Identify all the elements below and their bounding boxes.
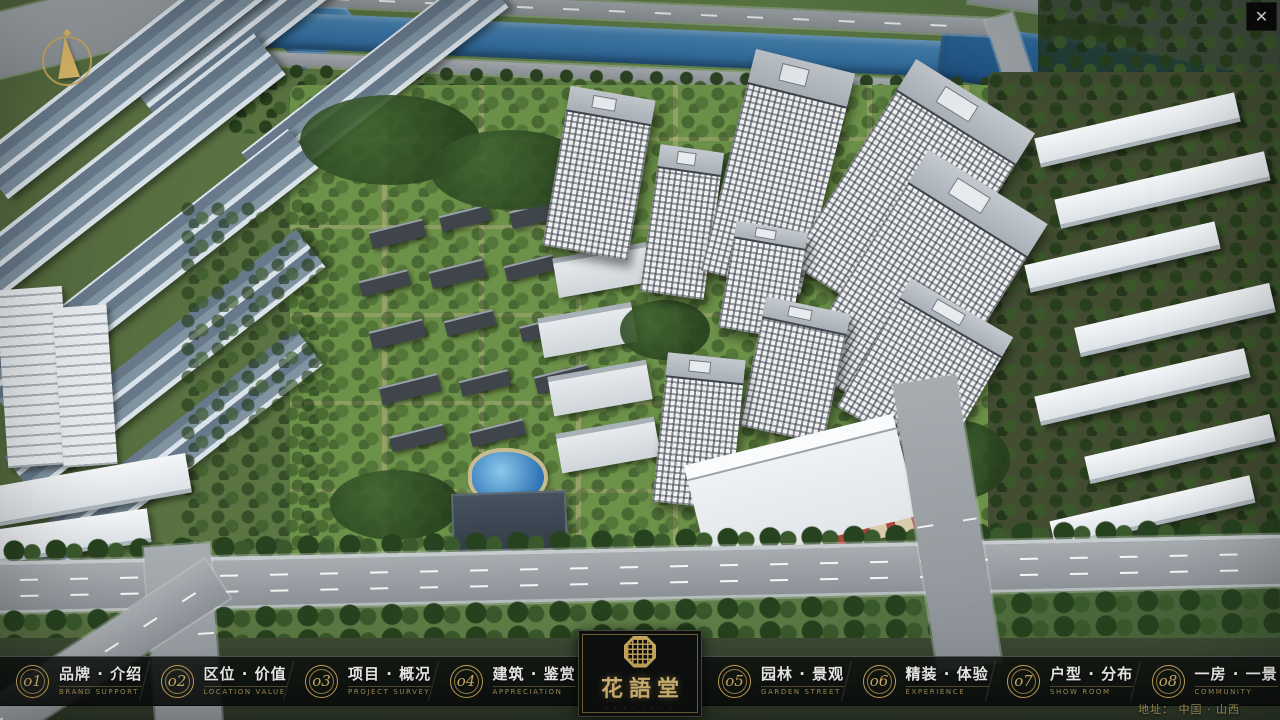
menu-item-label: 建筑 · 鉴赏 bbox=[493, 666, 576, 683]
menu-item-floorplan[interactable]: o7 户型 · 分布 SHOW ROOM bbox=[991, 657, 1136, 705]
tree-cluster bbox=[620, 300, 710, 360]
menu-group-left: o1 品牌 · 介绍 BRAND SUPPORT o2 区位 · 价值 LOCA… bbox=[0, 656, 578, 706]
menu-item-label: 一房 · 一景 bbox=[1195, 666, 1278, 683]
compass-needle bbox=[54, 35, 80, 79]
menu-item-label: 区位 · 价值 bbox=[204, 666, 287, 683]
brand-seal-icon bbox=[624, 636, 656, 668]
menu-number-icon: o2 bbox=[161, 665, 194, 698]
brand-seal-pattern bbox=[627, 639, 653, 665]
menu-number: o7 bbox=[1014, 672, 1033, 690]
close-icon: ✕ bbox=[1255, 7, 1268, 26]
menu-number: o2 bbox=[168, 672, 187, 690]
menu-item-subtitle: APPRECIATION bbox=[493, 686, 576, 696]
menu-number-icon: o3 bbox=[305, 665, 338, 698]
villa-roof bbox=[379, 373, 442, 405]
menu-item-subtitle: BRAND SUPPORT bbox=[59, 686, 142, 696]
tree-belt bbox=[180, 200, 330, 550]
villa-roof bbox=[459, 369, 511, 397]
menu-item-location-value[interactable]: o2 区位 · 价值 LOCATION VALUE bbox=[145, 657, 290, 705]
villa-roof bbox=[429, 259, 487, 290]
villa-roof bbox=[389, 424, 446, 453]
villa-roof bbox=[469, 419, 526, 448]
menu-item-label: 品牌 · 介绍 bbox=[59, 666, 142, 683]
villa-roof bbox=[369, 219, 427, 250]
menu-item-project-survey[interactable]: o3 项目 · 概况 PROJECT SURVEY bbox=[289, 657, 434, 705]
compass-icon bbox=[38, 32, 96, 90]
villa-roof bbox=[444, 309, 496, 337]
menu-number-icon: o8 bbox=[1152, 665, 1185, 698]
menu-number: o8 bbox=[1159, 672, 1178, 690]
menu-group-right: o5 园林 · 景观 GARDEN STREET o6 精装 · 体验 EXPE… bbox=[702, 656, 1280, 706]
menu-number: o4 bbox=[457, 672, 476, 690]
menu-item-label: 园林 · 景观 bbox=[761, 666, 844, 683]
menu-item-subtitle: COMMUNITY bbox=[1195, 686, 1278, 696]
project-name: 花語堂 bbox=[595, 671, 685, 703]
menu-item-subtitle: GARDEN STREET bbox=[761, 686, 844, 696]
menu-number-icon: o4 bbox=[450, 665, 483, 698]
menu-item-subtitle: PROJECT SURVEY bbox=[348, 686, 431, 696]
villa-roof bbox=[369, 319, 427, 350]
close-button[interactable]: ✕ bbox=[1246, 2, 1277, 31]
project-name-subtext: · · · · · · · · bbox=[606, 706, 675, 712]
menu-number: o5 bbox=[725, 672, 744, 690]
menu-item-brand-intro[interactable]: o1 品牌 · 介绍 BRAND SUPPORT bbox=[0, 657, 145, 705]
menu-item-subtitle: LOCATION VALUE bbox=[204, 686, 287, 696]
menu-number: o6 bbox=[870, 672, 889, 690]
menu-number-icon: o1 bbox=[16, 665, 49, 698]
menu-number-icon: o7 bbox=[1007, 665, 1040, 698]
menu-item-room-view[interactable]: o8 一房 · 一景 COMMUNITY bbox=[1136, 657, 1280, 705]
menu-item-subtitle: SHOW ROOM bbox=[1050, 686, 1133, 696]
project-address: 地址： 中国 · 山西 bbox=[1138, 701, 1240, 717]
sales-presentation-screen: ✕ o1 品牌 · 介绍 BRAND SUPPORT o2 区位 · 价值 LO… bbox=[0, 0, 1280, 720]
menu-number: o3 bbox=[312, 672, 331, 690]
tower-block bbox=[52, 304, 117, 467]
menu-number: o1 bbox=[23, 672, 42, 690]
menu-item-experience[interactable]: o6 精装 · 体验 EXPERIENCE bbox=[847, 657, 992, 705]
menu-item-label: 精装 · 体验 bbox=[906, 666, 989, 683]
menu-number-icon: o5 bbox=[718, 665, 751, 698]
villa-roof bbox=[504, 254, 556, 282]
project-logo-panel[interactable]: 花語堂 · · · · · · · · bbox=[578, 630, 702, 717]
menu-item-label: 项目 · 概况 bbox=[348, 666, 431, 683]
menu-item-subtitle: EXPERIENCE bbox=[906, 686, 989, 696]
menu-item-garden-landscape[interactable]: o5 园林 · 景观 GARDEN STREET bbox=[702, 657, 847, 705]
villa-roof bbox=[359, 269, 411, 297]
villa-roof bbox=[439, 204, 491, 232]
menu-number-icon: o6 bbox=[863, 665, 896, 698]
menu-item-architecture[interactable]: o4 建筑 · 鉴赏 APPRECIATION bbox=[434, 657, 579, 705]
tree-cluster bbox=[330, 470, 460, 540]
menu-item-label: 户型 · 分布 bbox=[1050, 666, 1133, 683]
